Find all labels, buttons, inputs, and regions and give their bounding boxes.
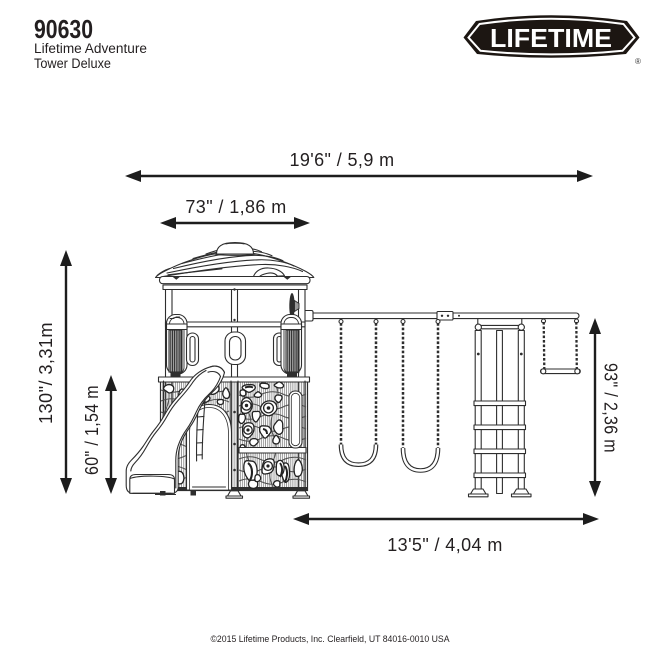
svg-text:19'6" / 5,9 m: 19'6" / 5,9 m [289,150,394,170]
svg-text:Tower Deluxe: Tower Deluxe [34,56,111,71]
svg-text:130"/ 3,31m: 130"/ 3,31m [36,322,56,424]
svg-text:®: ® [635,57,641,66]
svg-text:60" / 1,54 m: 60" / 1,54 m [82,385,102,475]
svg-text:73" / 1,86 m: 73" / 1,86 m [185,197,286,217]
svg-text:Lifetime Adventure: Lifetime Adventure [34,41,147,56]
svg-text:93" / 2,36 m: 93" / 2,36 m [601,363,621,453]
svg-text:90630: 90630 [34,14,93,44]
svg-text:LIFETIME: LIFETIME [490,23,612,53]
svg-text:13'5" / 4,04 m: 13'5" / 4,04 m [387,535,503,555]
svg-text:©2015 Lifetime Products, Inc.: ©2015 Lifetime Products, Inc. Clearfield… [211,634,451,645]
